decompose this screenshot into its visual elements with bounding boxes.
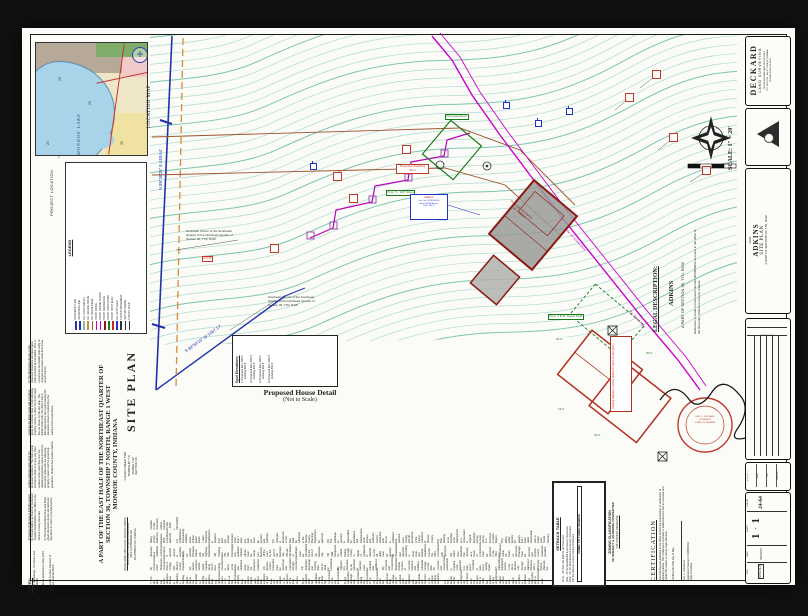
legend-entry: EX. SPOT ELEV.: [116, 166, 119, 330]
legend-entries: PROPERTY LINE ADJOINER LINE EX. CONTOUR …: [74, 166, 131, 330]
spot-elevation-entry: 2) Proposed Elev. 664.3' Existing 662.0': [250, 339, 256, 383]
developer-block: DEVELOPER-APPLICANT: DONALD ADKINS DOCUM…: [124, 500, 145, 588]
legend-entry-label: EX. CONTOUR (1'): [83, 297, 86, 319]
legend-entry-label: FOUND MONUMENT: [120, 294, 123, 319]
map-section-number: 23: [46, 135, 53, 145]
legal-description-heading: LEGAL DESCRIPTION:: [653, 228, 667, 332]
legend-entry: PROP. DRIVE: [95, 166, 98, 330]
setback-table-title: SETBACK TABLE: [556, 486, 561, 582]
titleblock-revisions-box: REVISIONS: [745, 318, 791, 460]
legend-swatch: [87, 321, 89, 330]
spot-elevations-title: Spot Elevations:: [235, 339, 239, 383]
legend-swatch: [129, 321, 131, 330]
legal-part: A PART OF SECTION 36, T7N, R1W: [681, 238, 691, 328]
note-item: 6) The dimensions shown on the proposed …: [28, 335, 47, 383]
titleblock-project-box: 24-64 ADKINS SITE PLAN A PART OF SECTION…: [745, 168, 791, 314]
detail-dim-label: 24.0': [556, 338, 562, 342]
legend-entry: SET 5/8" REBAR: [124, 166, 127, 330]
legend-entry: PROP. GRADE SLOPE: [99, 166, 102, 330]
legend-swatch: [79, 321, 81, 330]
map-lake-label: MONROE LAKE: [76, 103, 88, 155]
legend-entry: EX. DRIVE EDGE: [91, 166, 94, 330]
firm-name: DECKARD: [749, 38, 758, 102]
legend-swatch: [75, 321, 77, 330]
spot-marker: [402, 145, 411, 154]
elevation-flag-marker: [566, 108, 573, 115]
township-block: CLEAR CREEK TWP TOWNSHIP 7 N RANGE 1 W S…: [124, 438, 145, 494]
note-item: 12) Gravel entrance: Gentle swale requir…: [189, 562, 260, 571]
legend-entry-label: SET 5/8" REBAR: [124, 300, 127, 320]
spot-elevation-entry: 1) Proposed Elev. 664.1' Existing 660.4': [241, 339, 247, 383]
firm-sub: LAND SURVEYING: [758, 38, 762, 102]
spot-marker: [702, 166, 711, 175]
location-map-label: LOCATION MAP: [147, 72, 157, 128]
job-file-cell: FILE SITE.SHT: [747, 562, 787, 580]
title-line1: A PART OF THE EAST HALF OF THE NORTHEAST…: [98, 335, 105, 593]
note-item: 21) Stabilization: Permanently stabilize…: [176, 535, 270, 544]
spot-elevation-entries: 1) Proposed Elev. 664.1' Existing 660.4'…: [241, 339, 274, 383]
legend-entry-label: EX. DRIVE EDGE: [91, 299, 94, 320]
notes-bottom: 7) The plot plan has been prepared for u…: [150, 480, 550, 584]
corner-description-2: Southeast Corner of the Southeast Quarte…: [268, 296, 320, 307]
certification: CERTIFICATION This drawing was prepared …: [648, 481, 740, 583]
legend-entry: PROP. RESIDENCE: [103, 166, 106, 330]
note-item: 7) The plot plan has been prepared for u…: [150, 575, 299, 584]
spot-marker: [625, 93, 634, 102]
legend-swatch: [100, 321, 102, 330]
legend-swatch: [120, 321, 122, 330]
elevation-flag-marker: [503, 102, 510, 109]
legend-entry: EX. GRAVEL DRIVE: [87, 166, 90, 330]
job-sheet-cell: SHEET 1 - 1: [747, 511, 787, 545]
house-detail-title: Proposed House Detail (Not to Scale): [258, 388, 342, 403]
note-item: 18) Tracking and Off-Site Discharges: An…: [214, 548, 324, 557]
legend: LEGEND PROPERTY LINE ADJOINER LINE EX. C…: [65, 162, 147, 334]
legend-swatch: [104, 321, 106, 330]
note-item: 3) Proposed 1st floor elevation of resid…: [49, 545, 55, 593]
titleblock-firm-box: DECKARD LAND SURVEYING PROFESSIONAL LAND…: [745, 36, 791, 106]
project-client: ADKINS: [752, 170, 760, 310]
legend-entry-label: EX. SPOT ELEV.: [116, 300, 119, 320]
location-map: ✛ MONROE LAKE 26 25 23 35: [35, 42, 148, 156]
parcel-info-box: Adkins Inst. No. 2023009264 Area: 68.68 …: [410, 194, 448, 220]
detail-dim-label: 12.0': [558, 408, 564, 412]
zoned-label: ZONED: 'FR' FOREST RESERVE: [577, 486, 582, 582]
note-item: 19) Spill Response: No vehicle fueling, …: [327, 548, 447, 557]
revisions-title: REVISIONS: [761, 335, 773, 338]
note-item: 1) Basis of Bearings - Per Deed, Inst. 2…: [33, 545, 39, 593]
legend-swatch: [83, 321, 85, 330]
legend-entry: EX. CONTOUR (1'): [83, 166, 86, 330]
map-section-number: 25: [88, 95, 95, 105]
detail-dim-label: 30.0': [646, 352, 652, 356]
legend-swatch: [116, 321, 118, 330]
legend-swatch: [96, 321, 98, 330]
legend-swatch: [92, 321, 94, 330]
dwelling-spot-label: Proposed Dwelling Spot: [396, 164, 429, 174]
note-item: 14) Sediment discharge and tracking from…: [301, 562, 333, 571]
scanned-site-plan-photo: ✛ MONROE LAKE 26 25 23 35 LOCATION MAP P…: [0, 0, 808, 616]
certification-heading: CERTIFICATION: [650, 483, 657, 581]
note-item: 4) Source of title now or formerly owned…: [28, 493, 41, 541]
grading-note-box: Grading adjacent to home shall be 6" fal…: [610, 336, 632, 412]
setback-row: Per the Monroe County Zoning Ordinance: [572, 486, 575, 582]
note-item: 15) Adjacent lots disturbed by an indivi…: [337, 562, 379, 571]
elevation-flag-marker: [535, 120, 542, 127]
legend-entry-label: PROP. SPOT ELEV.: [111, 296, 114, 319]
spot-marker: [270, 244, 279, 253]
spot-marker: [333, 172, 342, 181]
project-location-label: PROJECT LOCATION: [50, 158, 60, 216]
bearing-label-north: N 89°38'26" E 453.64': [158, 110, 167, 190]
legend-entry-label: UTILITY POLE: [128, 302, 131, 319]
legal-reference: Reference is made to Instrument Number 2…: [694, 228, 716, 334]
spot-elevation-entry: 4) Proposed Elev. 664.3' Existing 660.3': [268, 339, 274, 383]
legend-swatch: [112, 321, 114, 330]
note-item: 16) Concrete and Concentrated Washwater:…: [382, 562, 492, 571]
scale-label: SCALE: 1" = 20': [728, 94, 744, 170]
title-line2: SECTION 36, TOWNSHIP 7 NORTH, RANGE 1 WE…: [105, 335, 112, 593]
legend-entry: ADJOINER LINE: [78, 166, 81, 330]
note-item: 8) No wetlands shall be disturbed during…: [302, 575, 341, 584]
titleblock-logo-box: [745, 108, 791, 166]
note-item: 2) Fieldwork performed in May 2024.: [42, 545, 45, 593]
note-item: 10) The builder and/or any underground s…: [444, 575, 544, 584]
legend-entry-label: EX. GRAVEL DRIVE: [87, 296, 90, 320]
legend-entry-label: ADJOINER LINE: [78, 300, 81, 320]
corner-description-1: Northeast Corner of the Southeast Quarte…: [186, 230, 238, 241]
title-sublines: A PART OF THE EAST HALF OF THE NORTHEAST…: [98, 335, 124, 593]
title-line3: MONROE COUNTY, INDIANA: [112, 335, 119, 593]
note-item: 24) This drawing is not intended to be r…: [437, 535, 498, 544]
map-section-number: 26: [58, 71, 65, 81]
legend-entry-label: PROP. DRIVE: [95, 303, 98, 319]
spot-marker: [349, 194, 358, 203]
detail-dim-label: 40.0': [594, 434, 600, 438]
titleblock-credits-box: S.D.L.R. TT WRL TLD RECON: [745, 462, 791, 491]
legend-swatch: [108, 321, 110, 330]
job-date-cell: DATE 05/16/24: [747, 545, 787, 562]
spot-elevations-box: Spot Elevations: 1) Proposed Elev. 664.1…: [232, 335, 338, 387]
note-item: 23) The individual lot operator is respo…: [327, 535, 434, 544]
page-title: SITE PLAN: [124, 336, 146, 432]
setback-table: SETBACK TABLE Front - 25' from the R/W f…: [552, 481, 606, 587]
spot-marker: [669, 133, 678, 142]
project-part: A PART OF SECTION 36, T7N, R1W: [765, 170, 769, 310]
seal-text: ERIC L. DECKARD LS29900012 STATE OF INDI…: [683, 416, 727, 424]
legend-swatch: [125, 321, 127, 330]
map-section-number: 35: [120, 135, 127, 145]
titleblock-job-box: FILE SITE.SHT DATE 05/16/24 SHEET 1 - 1: [745, 492, 791, 584]
legend-entry: FOUND MONUMENT: [120, 166, 123, 330]
map-compass-icon: ✛: [132, 47, 148, 63]
legend-entry-label: PROP. GRADE SLOPE: [99, 292, 102, 319]
spot-marker: [652, 70, 661, 79]
elevation-flag-marker: [310, 163, 317, 170]
zoning-classification: ZONING CLASSIFICATION OF SUBJECT & ADJOI…: [604, 481, 644, 583]
note-item: 13) Erosion control measures must be fun…: [263, 562, 299, 571]
pob-label: P.O.B.: [202, 256, 213, 262]
legend-entry-label: PROP. RESIDENCE: [103, 296, 106, 320]
job-number-cell: JOB NO. 24-64: [747, 494, 787, 511]
septic-label: Prop. 4 B.R. Septic Field: [548, 314, 584, 320]
note-item: 9) Any subsurface drainage tiles encount…: [344, 575, 441, 584]
deck-label: Proposed Deck: [445, 114, 469, 120]
spot-elevation-entry: 3) Proposed Elev. 664.1' Existing 662.4': [259, 339, 265, 383]
legend-title: LEGEND: [68, 166, 73, 330]
notes-left: NOTES: 1) Basis of Bearings - Per Deed, …: [28, 335, 98, 593]
legend-entry: UTILITY POLE: [128, 166, 131, 330]
note-item: 11) Construction drive: Temporary constr…: [150, 562, 186, 571]
logo-center-dot: [764, 133, 774, 143]
note-item: 22) Changes or deviations to this plan s…: [272, 535, 324, 544]
legend-entry: PROP. SPOT ELEV.: [111, 166, 114, 330]
